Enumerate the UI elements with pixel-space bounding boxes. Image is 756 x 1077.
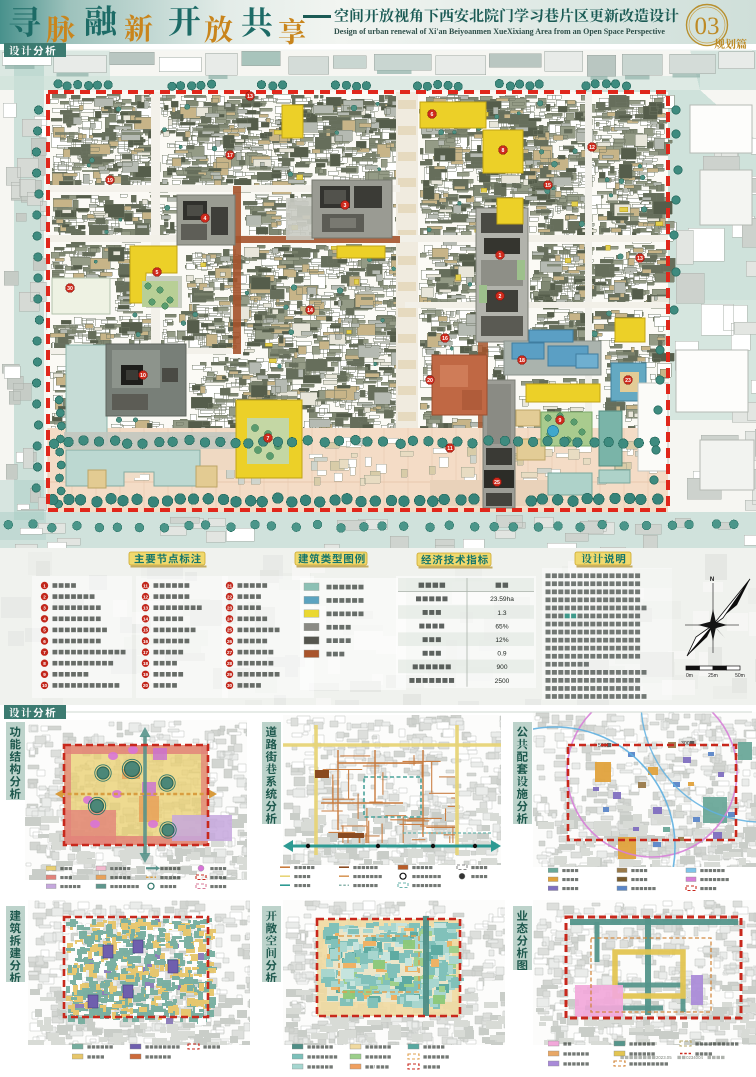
- svg-text:7: 7: [43, 650, 46, 655]
- svg-text:16: 16: [442, 336, 448, 342]
- svg-text:17: 17: [227, 153, 233, 159]
- svg-text:12: 12: [589, 145, 595, 151]
- svg-text:14: 14: [307, 308, 313, 314]
- svg-text:N: N: [710, 577, 714, 583]
- svg-text:16: 16: [143, 639, 149, 644]
- svg-text:10: 10: [42, 683, 48, 688]
- svg-text:11: 11: [447, 446, 453, 452]
- svg-text:0m: 0m: [686, 673, 693, 679]
- svg-text:28: 28: [227, 661, 233, 666]
- svg-text:50m: 50m: [735, 673, 745, 679]
- svg-text:27: 27: [227, 650, 233, 655]
- svg-text:19: 19: [107, 178, 113, 184]
- svg-text:10: 10: [140, 373, 146, 379]
- svg-text:1: 1: [499, 253, 502, 259]
- svg-text:25m: 25m: [708, 673, 718, 679]
- svg-text:17: 17: [143, 650, 149, 655]
- svg-text:19: 19: [143, 672, 149, 677]
- svg-text:03: 03: [695, 13, 720, 40]
- svg-text:13: 13: [143, 606, 149, 611]
- svg-text:26: 26: [227, 639, 233, 644]
- svg-text:/: /: [374, 1065, 376, 1070]
- svg-text:30: 30: [227, 683, 233, 688]
- svg-text:29: 29: [227, 672, 233, 677]
- svg-text:23.59ha: 23.59ha: [490, 596, 514, 603]
- svg-text:4: 4: [43, 617, 46, 622]
- svg-text:4: 4: [204, 216, 207, 222]
- svg-text:7: 7: [267, 436, 270, 442]
- svg-text:18: 18: [519, 358, 525, 364]
- svg-text:6: 6: [43, 639, 46, 644]
- svg-text:9: 9: [559, 418, 562, 424]
- svg-text:21: 21: [227, 583, 233, 588]
- svg-text:15: 15: [545, 183, 551, 189]
- svg-text:8: 8: [43, 661, 46, 666]
- svg-text:15: 15: [143, 628, 149, 633]
- svg-text:20: 20: [427, 378, 433, 384]
- svg-text:2500: 2500: [495, 678, 510, 685]
- svg-text:24: 24: [227, 617, 233, 622]
- svg-text:65%: 65%: [495, 623, 508, 630]
- svg-text:2023.05: 2023.05: [656, 1055, 672, 1060]
- svg-text:1: 1: [43, 583, 46, 588]
- svg-text:900: 900: [496, 664, 507, 671]
- svg-text:14: 14: [143, 617, 149, 622]
- svg-text:9: 9: [43, 672, 46, 677]
- svg-text:25: 25: [227, 628, 233, 633]
- svg-text:0.9: 0.9: [497, 651, 506, 658]
- svg-text:5: 5: [156, 270, 159, 276]
- svg-text:2: 2: [499, 294, 502, 300]
- svg-text:22: 22: [227, 594, 233, 599]
- svg-text:25: 25: [494, 480, 500, 486]
- svg-text:8: 8: [502, 148, 505, 154]
- svg-text:20: 20: [143, 683, 149, 688]
- svg-text:23: 23: [625, 378, 631, 384]
- svg-text:3: 3: [43, 606, 46, 611]
- svg-text:12%: 12%: [495, 637, 508, 644]
- svg-text:18: 18: [143, 661, 149, 666]
- svg-text:13: 13: [637, 256, 643, 262]
- svg-text:11: 11: [143, 583, 148, 588]
- svg-text:1.3: 1.3: [497, 610, 506, 617]
- svg-text:23: 23: [227, 606, 233, 611]
- svg-text:2: 2: [43, 594, 46, 599]
- svg-text:30: 30: [67, 286, 73, 292]
- svg-text:13: 13: [247, 94, 253, 100]
- svg-text:5: 5: [43, 628, 46, 633]
- svg-text:6: 6: [431, 112, 434, 118]
- svg-text:12: 12: [143, 594, 149, 599]
- svg-text:Design of urban renewal of Xi': Design of urban renewal of Xi'an Beiyoan…: [334, 27, 665, 36]
- svg-text:0234004: 0234004: [686, 1055, 703, 1060]
- svg-text:3: 3: [344, 203, 347, 209]
